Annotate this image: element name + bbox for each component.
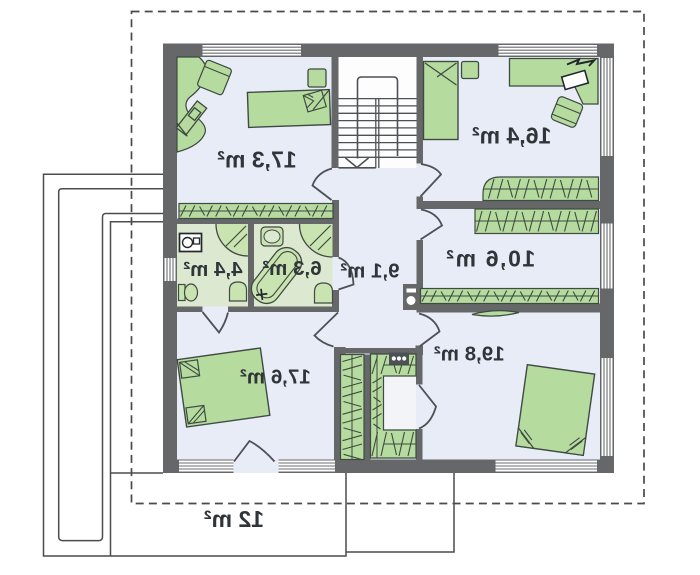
svg-text:19,8 m²: 19,8 m² — [434, 343, 505, 366]
svg-text:16,4 m²: 16,4 m² — [472, 123, 552, 149]
svg-text:4,4 m²: 4,4 m² — [183, 258, 242, 281]
svg-text:9,1 m²: 9,1 m² — [340, 260, 399, 283]
svg-text:17,3 m²: 17,3 m² — [217, 147, 297, 173]
svg-text:6,3 m²: 6,3 m² — [262, 257, 321, 280]
svg-text:12 m²: 12 m² — [204, 506, 264, 532]
svg-text:17,6 m²: 17,6 m² — [240, 366, 311, 389]
svg-text:10,6 m²: 10,6 m² — [445, 246, 535, 272]
